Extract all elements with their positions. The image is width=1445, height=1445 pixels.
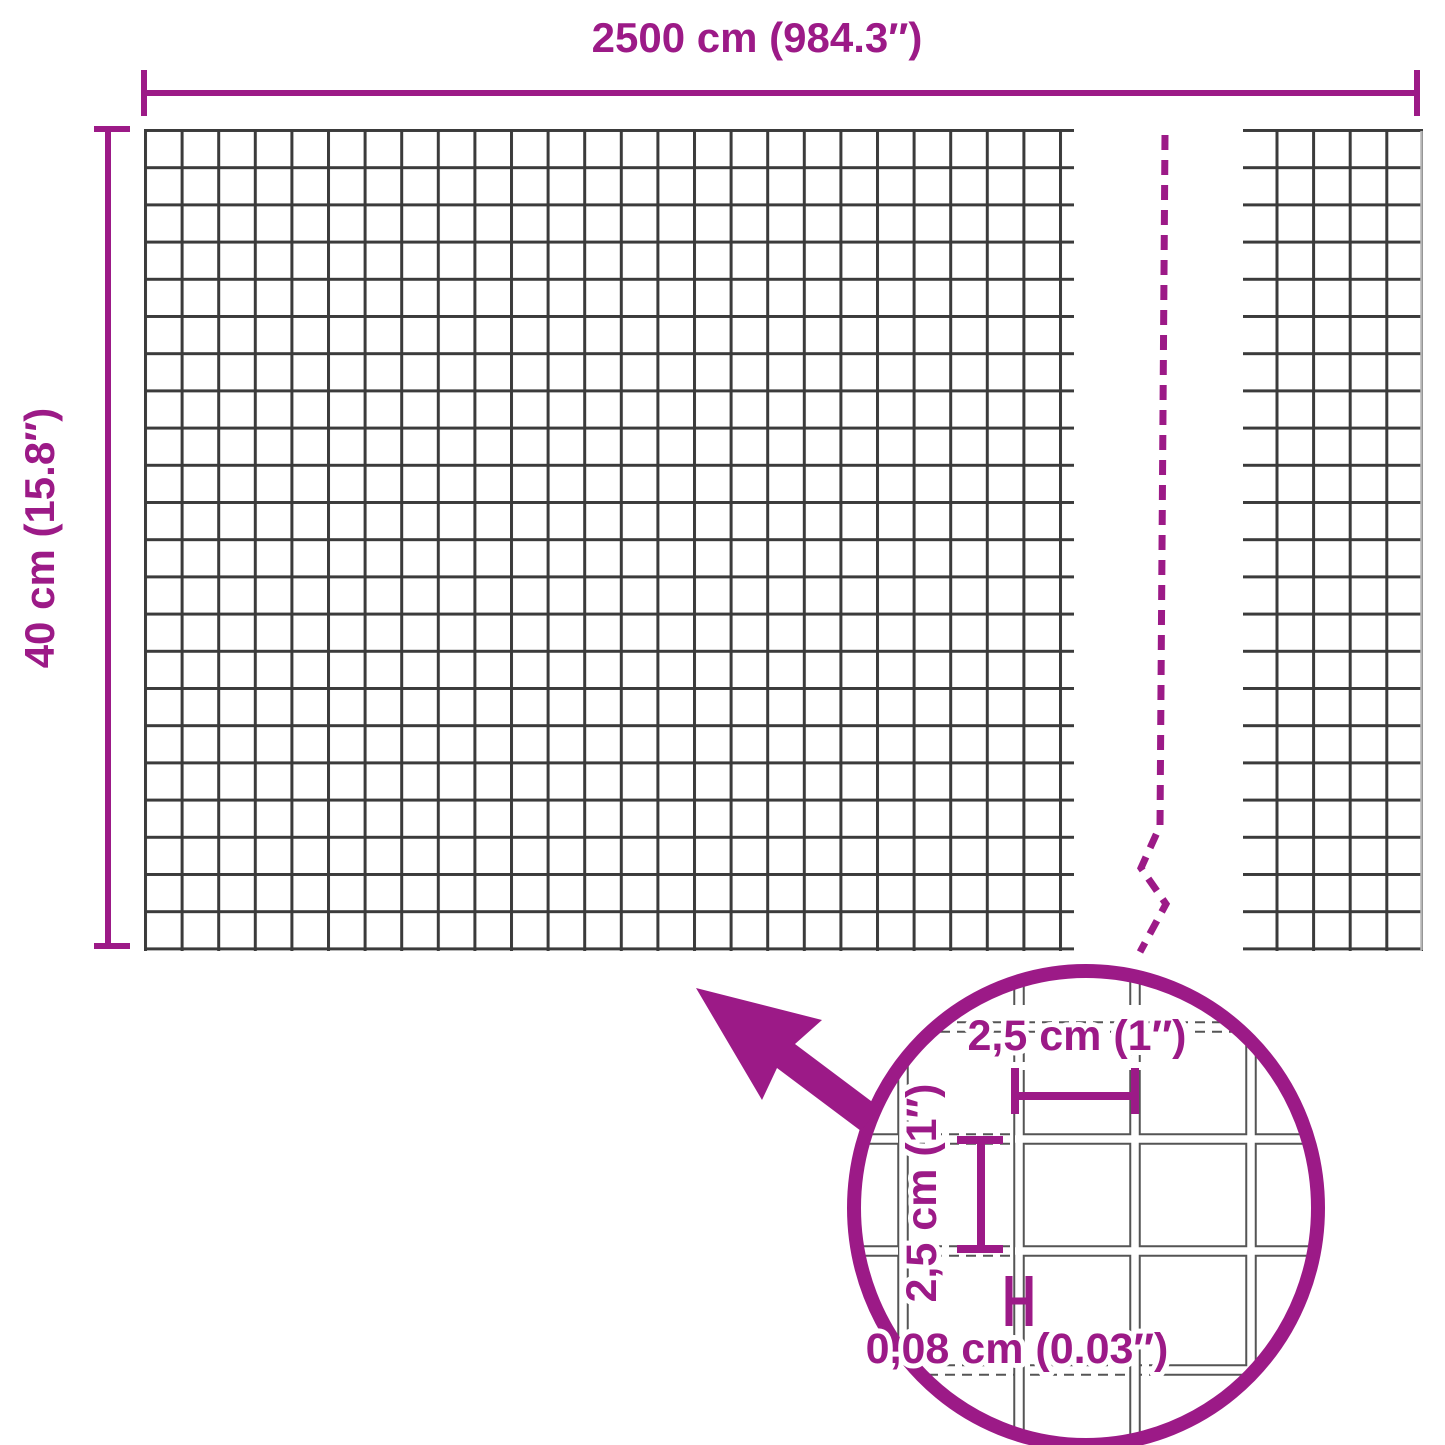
- mesh-panel-main: [144, 129, 1074, 951]
- break-line: [1140, 135, 1166, 952]
- mesh-opening-height-label: 2,5 cm (1″): [898, 1084, 946, 1303]
- diagram-canvas: 2500 cm (984.3″) 40 cm (15.8″): [0, 0, 1445, 1445]
- height-dimension-line: [94, 129, 130, 946]
- mesh-opening-width-bracket-path: [1015, 1068, 1135, 1114]
- width-dimension-label: 2500 cm (984.3″): [592, 14, 923, 61]
- mesh-opening-width-label: 2,5 cm (1″): [968, 1012, 1187, 1060]
- mesh-panel-continuation-grid: [1243, 129, 1423, 951]
- zoom-arrow-icon: [696, 988, 879, 1131]
- dimension-diagram: 2500 cm (984.3″) 40 cm (15.8″): [0, 0, 1445, 1445]
- mesh-panel-main-grid: [144, 129, 1074, 951]
- mesh-opening-height-bracket-path: [957, 1140, 1003, 1249]
- mesh-panel-continuation: [1243, 129, 1423, 951]
- mesh-opening-height-bracket: [957, 1140, 1003, 1249]
- mesh-opening-width-bracket: [1015, 1068, 1135, 1114]
- break-line-path: [1140, 135, 1166, 952]
- width-dimension-line: [144, 70, 1417, 116]
- detail-circle: 2,5 cm (1″) 2,5 cm (1″) 0,08 cm (0.03″): [852, 965, 1325, 1445]
- wire-thickness-label: 0,08 cm (0.03″): [866, 1325, 1169, 1373]
- height-dimension-label: 40 cm (15.8″): [16, 408, 63, 669]
